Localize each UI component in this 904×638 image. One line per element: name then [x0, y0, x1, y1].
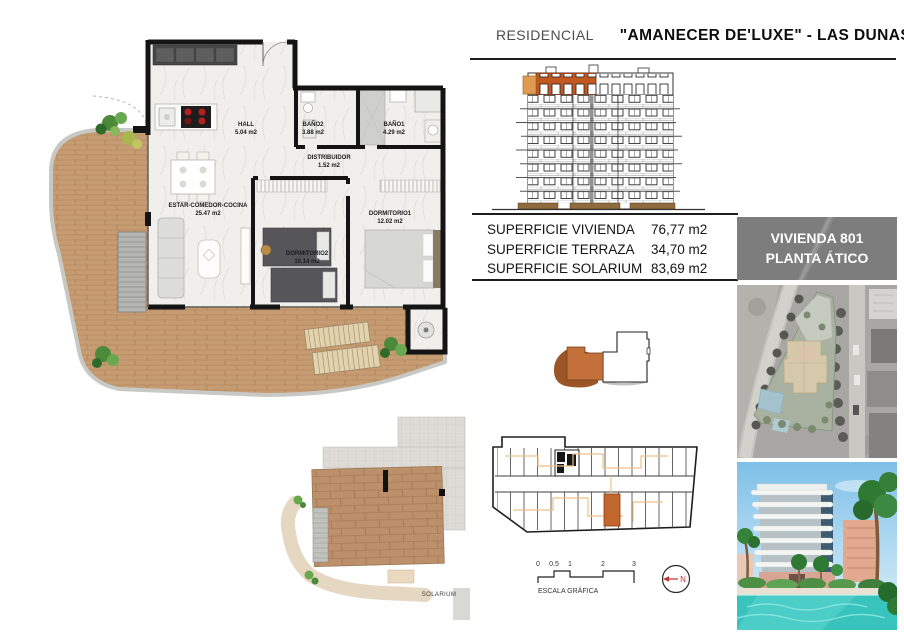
header-prefix: RESIDENCIAL — [496, 27, 594, 43]
row-value: 76,77 m2 — [651, 220, 733, 240]
room-label-dormitorio2: DORMITORIO210.14 m2 — [276, 251, 338, 266]
solarium-access — [383, 470, 388, 492]
room-label-distribuidor: DISTRIBUIDOR1.52 m2 — [298, 155, 360, 170]
wall-stub — [145, 212, 151, 226]
key-plan-outline — [603, 332, 649, 382]
unit-badge: VIVIENDA 801 PLANTA ÁTICO — [737, 217, 897, 280]
pool-deck — [737, 588, 897, 595]
neighbor-buildings — [867, 289, 897, 458]
floor-highlighted-unit — [604, 494, 620, 526]
scale-tick: 0.5 — [549, 561, 559, 568]
scale-tick: 0 — [536, 561, 540, 568]
solarium-deck — [312, 466, 444, 566]
table-row: SUPERFICIE VIVIENDA 76,77 m2 — [487, 220, 733, 240]
solarium-marker — [439, 489, 445, 496]
table-row: SUPERFICIE TERRAZA 34,70 m2 — [487, 240, 733, 260]
table-top-divider — [472, 213, 738, 215]
room-label-dormitorio1: DORMITORIO112.02 m2 — [359, 211, 421, 226]
solarium-pad — [388, 570, 414, 583]
pool — [737, 595, 897, 630]
scale-bar: 0 0.5 1 2 3 ESCALA GRÁFICA — [530, 556, 650, 596]
terrace-stairs — [118, 232, 146, 312]
solarium-label: SOLARIUM — [413, 592, 465, 598]
header-divider — [470, 58, 896, 60]
scale-tick: 3 — [632, 561, 636, 568]
room-label-bano1: BAÑO14.29 m2 — [372, 122, 416, 137]
terrace-shower — [408, 308, 445, 352]
floor-key-plan-drawing — [483, 432, 718, 537]
highlighted-terrace — [523, 76, 536, 94]
scale-label: ESCALA GRÁFICA — [538, 586, 599, 595]
building-render-photo — [737, 462, 897, 630]
building-elevation-drawing — [490, 63, 710, 213]
page-title: "AMANECER DE'LUXE" - LAS DUNAS" — [620, 27, 904, 45]
scale-tick: 1 — [568, 561, 572, 568]
row-value: 83,69 m2 — [651, 259, 733, 279]
solarium-stairs — [313, 508, 328, 562]
north-label: N — [680, 575, 686, 584]
scale-tick: 2 — [601, 561, 605, 568]
key-plan-drawing — [548, 328, 653, 398]
room-label-estar: ESTAR-COMEDOR-COCINA25.47 m2 — [162, 203, 254, 218]
elevation-floors — [528, 95, 673, 203]
plan-sheet: HALL5.04 m2 BAÑO23.88 m2 BAÑO14.29 m2 DI… — [0, 0, 904, 638]
room-label-hall: HALL5.04 m2 — [227, 122, 265, 137]
main-building — [751, 484, 835, 588]
row-value: 34,70 m2 — [651, 240, 733, 260]
row-label: SUPERFICIE TERRAZA — [487, 240, 651, 260]
table-row: SUPERFICIE SOLARIUM 83,69 m2 — [487, 259, 733, 279]
scale-steps — [538, 571, 634, 583]
row-label: SUPERFICIE VIVIENDA — [487, 220, 651, 240]
unit-number: VIVIENDA 801 — [737, 228, 897, 248]
table-bottom-divider — [472, 279, 738, 281]
street — [849, 285, 865, 458]
room-label-bano2: BAÑO23.88 m2 — [292, 122, 334, 137]
penthouse-windows — [538, 74, 670, 94]
row-label: SUPERFICIE SOLARIUM — [487, 259, 651, 279]
surface-summary-table: SUPERFICIE VIVIENDA 76,77 m2 SUPERFICIE … — [487, 220, 733, 279]
north-arrow-icon: N — [655, 560, 697, 602]
background-building — [843, 520, 879, 582]
elevation-base — [492, 203, 705, 210]
solarium-plan-drawing — [275, 415, 470, 635]
aerial-site-plan — [737, 285, 897, 458]
key-plan-highlighted-unit — [567, 347, 603, 380]
unit-floor: PLANTA ÁTICO — [737, 248, 897, 268]
sheet-header: RESIDENCIAL "AMANECER DE'LUXE" - LAS DUN… — [496, 27, 904, 45]
